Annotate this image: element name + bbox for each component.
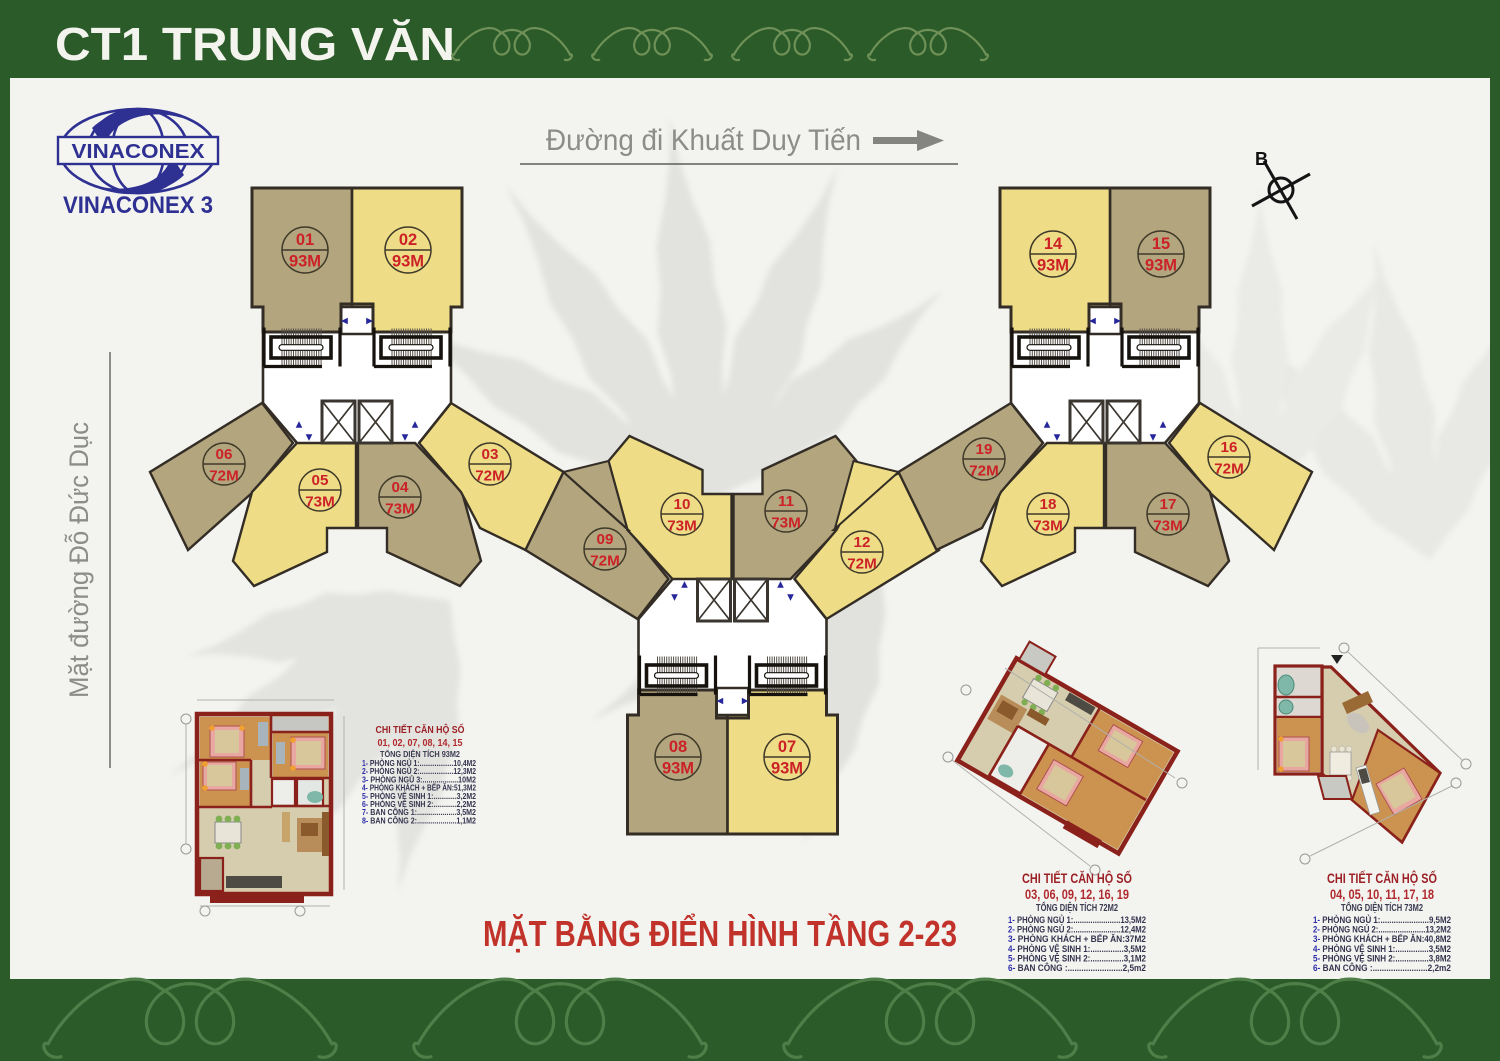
svg-text:5- PHÒNG VỆ SINH 2:...........: 5- PHÒNG VỆ SINH 2:...............3,8M2 bbox=[1313, 952, 1451, 963]
svg-text:93M: 93M bbox=[1037, 257, 1069, 275]
svg-text:72M: 72M bbox=[1214, 461, 1244, 478]
svg-text:VINACONEX 3: VINACONEX 3 bbox=[63, 192, 213, 219]
svg-text:12: 12 bbox=[854, 534, 871, 551]
svg-text:07: 07 bbox=[778, 738, 796, 756]
svg-text:11: 11 bbox=[778, 493, 795, 510]
svg-text:VINACONEX: VINACONEX bbox=[72, 141, 206, 163]
svg-text:TỔNG DIỆN TÍCH 93M2: TỔNG DIỆN TÍCH 93M2 bbox=[380, 748, 460, 759]
svg-text:10: 10 bbox=[674, 496, 691, 513]
svg-text:6- BAN CÔNG :.................: 6- BAN CÔNG :........................2,2… bbox=[1313, 962, 1451, 973]
svg-text:93M: 93M bbox=[289, 253, 321, 271]
svg-text:5- PHÒNG VỆ SINH 2:...........: 5- PHÒNG VỆ SINH 2:...............3,1M2 bbox=[1008, 952, 1146, 963]
svg-text:04, 05, 10, 11, 17, 18: 04, 05, 10, 11, 17, 18 bbox=[1330, 887, 1434, 902]
svg-text:B: B bbox=[1255, 149, 1268, 169]
svg-text:19: 19 bbox=[976, 441, 993, 458]
svg-text:72M: 72M bbox=[209, 468, 239, 485]
svg-text:01, 02, 07, 08, 14, 15: 01, 02, 07, 08, 14, 15 bbox=[378, 737, 463, 749]
svg-text:CT1 TRUNG VĂN: CT1 TRUNG VĂN bbox=[55, 18, 455, 70]
svg-text:4- PHÒNG VỆ SINH 1:...........: 4- PHÒNG VỆ SINH 1:...............3,5M2 bbox=[1008, 943, 1146, 954]
svg-text:73M: 73M bbox=[1033, 518, 1063, 535]
svg-text:05: 05 bbox=[312, 472, 329, 489]
svg-text:CHI TIẾT CĂN HỘ SỐ: CHI TIẾT CĂN HỘ SỐ bbox=[1327, 871, 1437, 886]
svg-text:73M: 73M bbox=[385, 501, 415, 518]
svg-text:04: 04 bbox=[392, 479, 409, 496]
svg-text:73M: 73M bbox=[305, 494, 335, 511]
svg-text:6- BAN CÔNG :.................: 6- BAN CÔNG :........................2,5… bbox=[1008, 962, 1146, 973]
svg-text:09: 09 bbox=[597, 531, 614, 548]
svg-text:1- PHÒNG NGỦ 1:...............: 1- PHÒNG NGỦ 1:......................13,… bbox=[1008, 914, 1146, 925]
svg-text:03, 06, 09, 12, 16, 19: 03, 06, 09, 12, 16, 19 bbox=[1025, 887, 1129, 902]
svg-text:73M: 73M bbox=[1153, 518, 1183, 535]
svg-text:15: 15 bbox=[1152, 235, 1170, 253]
svg-text:01: 01 bbox=[296, 231, 314, 249]
svg-text:08: 08 bbox=[669, 738, 687, 756]
svg-text:TỔNG DIỆN TÍCH 73M2: TỔNG DIỆN TÍCH 73M2 bbox=[1341, 902, 1423, 914]
svg-text:14: 14 bbox=[1044, 235, 1063, 253]
svg-text:8- BAN CÔNG 2:................: 8- BAN CÔNG 2:....................1,1M2 bbox=[362, 814, 476, 825]
svg-text:1- PHÒNG NGỦ 1:...............: 1- PHÒNG NGỦ 1:......................9,5… bbox=[1313, 914, 1451, 925]
svg-text:2- PHÒNG NGỦ 2:...............: 2- PHÒNG NGỦ 2:......................13,… bbox=[1313, 924, 1451, 935]
svg-text:CHI TIẾT CĂN HỘ SỐ: CHI TIẾT CĂN HỘ SỐ bbox=[376, 722, 465, 736]
svg-text:72M: 72M bbox=[847, 556, 877, 573]
svg-text:93M: 93M bbox=[1145, 257, 1177, 275]
svg-text:MẶT BẰNG ĐIỂN HÌNH TẦNG 2-23: MẶT BẰNG ĐIỂN HÌNH TẦNG 2-23 bbox=[483, 912, 957, 954]
svg-text:CHI TIẾT CĂN HỘ SỐ: CHI TIẾT CĂN HỘ SỐ bbox=[1022, 871, 1132, 886]
svg-text:02: 02 bbox=[399, 231, 417, 249]
svg-text:93M: 93M bbox=[392, 253, 424, 271]
svg-text:Mặt đường Đỗ Đức Dục: Mặt đường Đỗ Đức Dục bbox=[63, 422, 94, 698]
svg-text:06: 06 bbox=[216, 446, 233, 463]
svg-text:72M: 72M bbox=[969, 463, 999, 480]
svg-text:93M: 93M bbox=[662, 760, 694, 778]
svg-text:18: 18 bbox=[1040, 496, 1057, 513]
svg-text:93M: 93M bbox=[771, 760, 803, 778]
svg-text:72M: 72M bbox=[590, 553, 620, 570]
svg-text:2- PHÒNG NGỦ 2:...............: 2- PHÒNG NGỦ 2:......................12,… bbox=[1008, 924, 1146, 935]
svg-text:3- PHÒNG KHÁCH + BẾP ĂN:37M2: 3- PHÒNG KHÁCH + BẾP ĂN:37M2 bbox=[1008, 933, 1146, 944]
svg-text:Đường đi Khuất Duy Tiến: Đường đi Khuất Duy Tiến bbox=[546, 124, 861, 157]
svg-text:4- PHÒNG VỆ SINH 1:...........: 4- PHÒNG VỆ SINH 1:...............3,5M2 bbox=[1313, 943, 1451, 954]
svg-text:73M: 73M bbox=[771, 515, 801, 532]
svg-text:TỔNG DIỆN TÍCH 72M2: TỔNG DIỆN TÍCH 72M2 bbox=[1036, 902, 1118, 914]
svg-text:3- PHÒNG KHÁCH + BẾP ĂN:40,8M2: 3- PHÒNG KHÁCH + BẾP ĂN:40,8M2 bbox=[1313, 933, 1451, 944]
svg-text:72M: 72M bbox=[475, 468, 505, 485]
svg-text:03: 03 bbox=[482, 446, 499, 463]
svg-text:16: 16 bbox=[1221, 439, 1238, 456]
svg-text:73M: 73M bbox=[667, 518, 697, 535]
svg-text:17: 17 bbox=[1160, 496, 1177, 513]
